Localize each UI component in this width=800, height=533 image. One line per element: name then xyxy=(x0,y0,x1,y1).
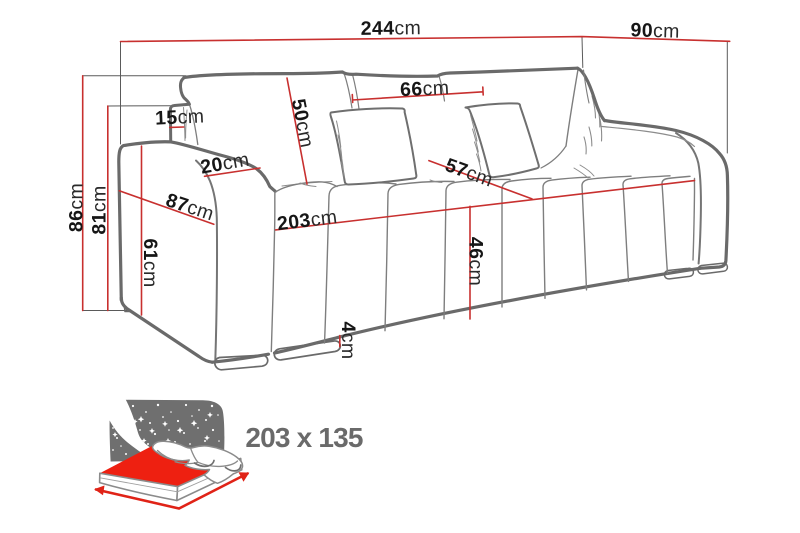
svg-text:203 x 135: 203 x 135 xyxy=(245,422,363,453)
svg-text:4cm: 4cm xyxy=(337,321,359,359)
svg-text:61cm: 61cm xyxy=(139,238,161,287)
svg-text:244cm: 244cm xyxy=(361,17,422,40)
svg-text:86cm: 86cm xyxy=(66,183,88,232)
svg-text:81cm: 81cm xyxy=(89,185,111,234)
svg-text:46cm: 46cm xyxy=(465,237,487,286)
svg-text:66cm: 66cm xyxy=(400,77,450,101)
svg-text:90cm: 90cm xyxy=(630,19,680,42)
svg-text:15cm: 15cm xyxy=(155,105,205,129)
